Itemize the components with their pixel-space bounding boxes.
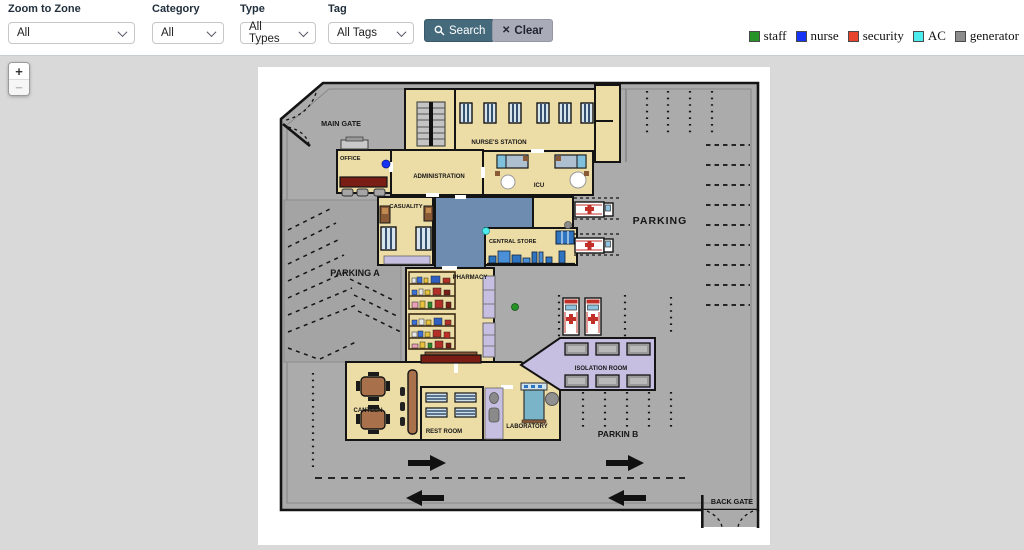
- legend-label-ac: AC: [928, 28, 946, 44]
- tag-value: All Tags: [337, 27, 377, 39]
- legend-item-security: security: [848, 28, 904, 44]
- icu-label: ICU: [534, 183, 544, 189]
- zoom-in-button[interactable]: +: [9, 63, 29, 79]
- chevron-down-icon: [397, 27, 407, 37]
- pharmacy-label: PHARMACY: [453, 275, 488, 281]
- marker-generator[interactable]: [565, 222, 572, 229]
- category-value: All: [161, 27, 174, 39]
- legend-label-security: security: [863, 28, 904, 44]
- generator-color-swatch: [955, 31, 966, 42]
- staircase: [417, 102, 445, 146]
- type-value: All Types: [249, 21, 292, 45]
- chevron-down-icon: [299, 27, 309, 37]
- legend-item-ac: AC: [913, 28, 946, 44]
- main-gate-label: MAIN GATE: [321, 119, 361, 128]
- back-gate-label: BACK GATE: [711, 497, 753, 506]
- filter-tag: Tag All Tags: [328, 3, 414, 15]
- search-button-label: Search: [449, 25, 485, 37]
- legend-label-nurse: nurse: [811, 28, 839, 44]
- chevron-down-icon: [118, 27, 128, 37]
- category-select[interactable]: All: [152, 22, 224, 44]
- clear-button[interactable]: ✕ Clear: [492, 19, 553, 42]
- administration-label: ADMINISTRATION: [413, 174, 465, 180]
- parking-a-label: PARKING A: [330, 268, 380, 278]
- map-region: + − MAIN GATE: [0, 55, 1024, 550]
- filter-type: Type All Types: [240, 3, 316, 15]
- isolation-room-label: ISOLATION ROOM: [575, 366, 628, 372]
- laboratory-label: LABORATORY: [506, 424, 548, 430]
- central-store-label: CENTRAL STORE: [489, 239, 537, 245]
- zoom-to-zone-select[interactable]: All: [8, 22, 135, 44]
- close-icon: ✕: [502, 25, 510, 36]
- marker-nurse[interactable]: [382, 160, 390, 168]
- legend-label-staff: staff: [764, 28, 787, 44]
- legend-item-staff: staff: [749, 28, 787, 44]
- legend-item-nurse: nurse: [796, 28, 839, 44]
- filter-category: Category All: [152, 3, 224, 15]
- zoom-to-zone-label: Zoom to Zone: [8, 3, 135, 15]
- clear-button-label: Clear: [514, 25, 543, 37]
- ac-color-swatch: [913, 31, 924, 42]
- casuality-label: CASUALITY: [389, 204, 422, 210]
- staff-color-swatch: [749, 31, 760, 42]
- legend-label-generator: generator: [970, 28, 1019, 44]
- zoom-control: + −: [8, 62, 30, 96]
- tag-select[interactable]: All Tags: [328, 22, 414, 44]
- nurse-color-swatch: [796, 31, 807, 42]
- type-select[interactable]: All Types: [240, 22, 316, 44]
- parking-label: PARKING: [633, 215, 688, 227]
- category-label: Category: [152, 3, 224, 15]
- map-canvas[interactable]: MAIN GATE: [258, 67, 770, 545]
- office-label: OFFICE: [340, 156, 361, 162]
- zoom-to-zone-value: All: [17, 27, 30, 39]
- parkin-b-label: PARKIN B: [598, 429, 638, 439]
- rest-room-label: REST ROOM: [426, 429, 462, 435]
- canteen-label: CANTEEN: [353, 408, 382, 414]
- type-label: Type: [240, 3, 316, 15]
- marker-staff[interactable]: [512, 304, 519, 311]
- tag-label: Tag: [328, 3, 414, 15]
- legend-item-generator: generator: [955, 28, 1019, 44]
- zoom-out-button[interactable]: −: [9, 79, 29, 95]
- filter-zoom-to-zone: Zoom to Zone All: [8, 3, 135, 15]
- floor-plan-svg: MAIN GATE: [258, 67, 770, 545]
- app-root: Zoom to Zone All Category All Type All T…: [0, 0, 1024, 550]
- search-button[interactable]: Search: [424, 19, 495, 42]
- filter-toolbar: Zoom to Zone All Category All Type All T…: [0, 0, 1024, 55]
- nurses-station-label: NURSE'S STATION: [471, 139, 527, 146]
- legend: staff nurse security AC generator: [749, 28, 1019, 44]
- chevron-down-icon: [207, 27, 217, 37]
- marker-ac[interactable]: [483, 228, 490, 235]
- search-icon: [434, 25, 445, 36]
- security-color-swatch: [848, 31, 859, 42]
